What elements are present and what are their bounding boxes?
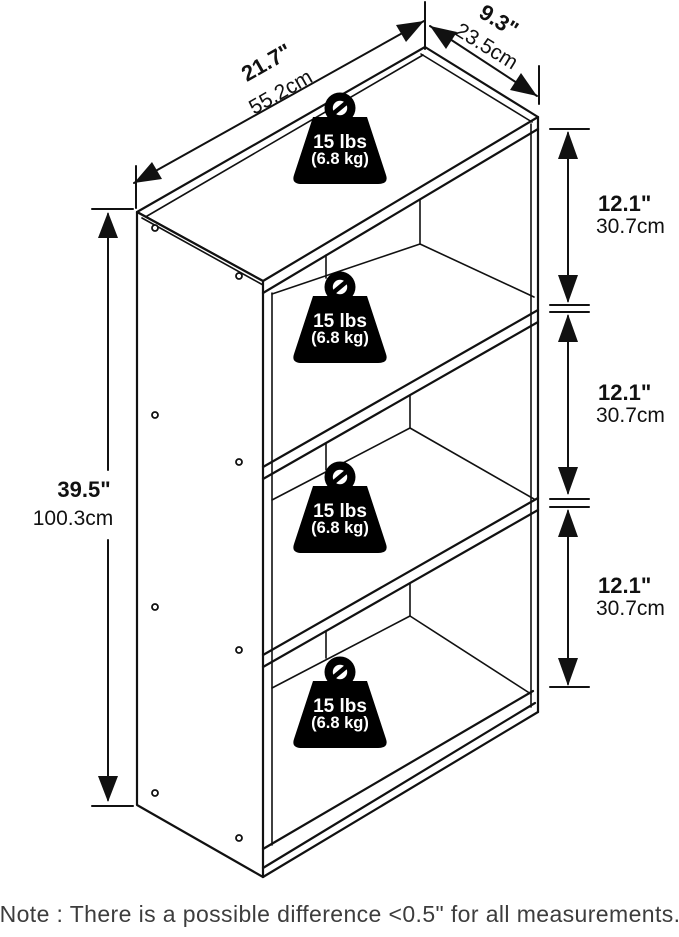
compartment2-right-joint — [410, 428, 534, 499]
spacing3-cm-label: 30.7cm — [596, 597, 665, 620]
measurement-note: Note : There is a possible difference <0… — [0, 901, 679, 927]
spacing1-arrowhead-up — [558, 131, 578, 159]
screw-hole — [236, 835, 242, 841]
screw-hole — [152, 604, 158, 610]
compartment1-right-joint — [420, 244, 534, 297]
spacing1-inches-label: 12.1" — [598, 191, 651, 216]
spacing3-arrowhead-up — [558, 509, 578, 537]
bookcase-dimension-diagram: 15 lbs (6.8 kg) 15 lbs (6.8 kg) 15 lbs (… — [0, 0, 679, 937]
shelf-spacing-dimension-1: 12.1" 30.7cm — [550, 129, 665, 312]
spacing2-arrowhead-up — [558, 314, 578, 342]
height-inches-label: 39.5" — [57, 477, 110, 502]
height-arrowhead-down — [98, 776, 118, 802]
screw-hole — [152, 225, 158, 231]
dimension-diagram-page: 15 lbs (6.8 kg) 15 lbs (6.8 kg) 15 lbs (… — [0, 0, 679, 937]
weight-kilograms-label: (6.8 kg) — [311, 150, 369, 168]
compartment3-right-joint — [410, 616, 531, 694]
weight-icon-shelf-2: 15 lbs (6.8 kg) — [293, 272, 386, 364]
spacing1-cm-label: 30.7cm — [596, 215, 665, 238]
spacing2-inches-label: 12.1" — [598, 380, 651, 405]
spacing2-cm-label: 30.7cm — [596, 404, 665, 427]
width-arrowhead-right — [396, 21, 424, 42]
weight-kilograms-label: (6.8 kg) — [311, 519, 369, 537]
spacing3-arrowhead-down — [558, 658, 578, 686]
depth-arrowhead-right — [510, 73, 537, 96]
height-arrowhead-up — [98, 212, 118, 238]
weight-icon-shelf-3: 15 lbs (6.8 kg) — [293, 462, 386, 554]
shelf-spacing-dimension-2: 12.1" 30.7cm — [550, 314, 665, 507]
shelf-spacing-dimension-3: 12.1" 30.7cm — [550, 509, 665, 687]
screw-hole — [236, 273, 242, 279]
screw-hole — [152, 412, 158, 418]
height-cm-label: 100.3cm — [33, 507, 114, 530]
spacing2-arrowhead-down — [558, 467, 578, 495]
screw-hole — [236, 459, 242, 465]
screw-hole — [236, 647, 242, 653]
screw-hole — [152, 790, 158, 796]
interior-joint-lines — [272, 200, 534, 694]
spacing1-arrowhead-down — [558, 275, 578, 303]
weight-kilograms-label: (6.8 kg) — [311, 329, 369, 347]
spacing3-inches-label: 12.1" — [598, 573, 651, 598]
width-arrowhead-left — [134, 162, 162, 183]
left-side-panel — [137, 212, 263, 877]
weight-kilograms-label: (6.8 kg) — [311, 714, 369, 732]
height-dimension: 39.5" 100.3cm — [33, 209, 133, 806]
